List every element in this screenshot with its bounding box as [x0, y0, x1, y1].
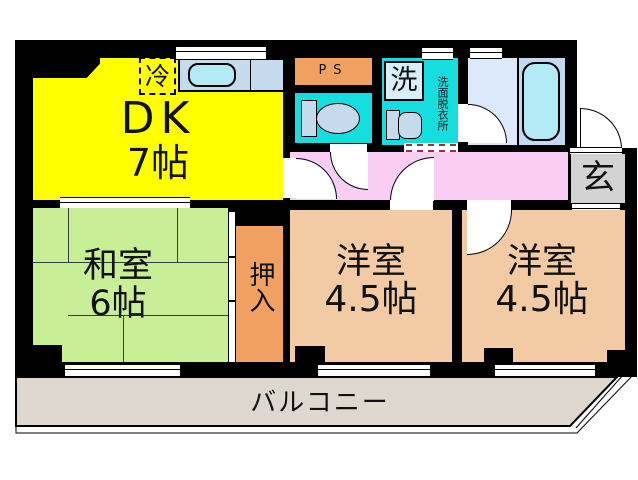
western-right-size: 4.5帖 — [495, 281, 588, 320]
toilet-bowl-icon — [316, 103, 360, 134]
western-right-corner-pillar — [607, 350, 625, 362]
western-right-balcony-window — [495, 364, 595, 377]
curtain-dash-1 — [406, 144, 456, 146]
washitsu-balcony-window — [65, 364, 180, 377]
bathroom-window — [470, 47, 502, 59]
kitchen-sink-icon — [188, 63, 236, 87]
oshiire-label: 押入 — [246, 232, 274, 342]
washitsu-name: 和室 — [83, 248, 153, 286]
dk-label: DK 7帖 — [68, 92, 248, 187]
western-left-pillar — [295, 346, 325, 362]
fridge-spot: 冷 — [139, 57, 176, 95]
washitsu-size: 6帖 — [89, 286, 146, 324]
pipe-space: PS — [295, 58, 372, 85]
dk-name: DK — [121, 95, 196, 143]
western-left-label: 洋室 4.5帖 — [295, 232, 447, 332]
washroom-window — [422, 47, 453, 60]
washer-label: 洗 — [391, 66, 418, 95]
floor-plan: 冷 DK 7帖 PS 洗 洗面脱衣所 玄 靴 — [0, 0, 638, 480]
fridge-label: 冷 — [145, 63, 170, 90]
genkan-label: 玄 — [581, 160, 615, 197]
washroom-label: 洗面脱衣所 — [430, 62, 454, 144]
western-left-door-gap — [390, 200, 433, 210]
ps-label: PS — [318, 64, 348, 78]
bathroom-door-gap — [458, 104, 468, 142]
kitchen-counter-divider — [250, 59, 251, 91]
oshiire-fusuma — [228, 212, 236, 362]
toilet-tank-icon — [301, 100, 317, 137]
genkan: 玄 — [570, 154, 625, 203]
toilet-door-gap — [330, 144, 367, 152]
western-left-balcony-window — [318, 364, 430, 377]
western-right-name: 洋室 — [507, 244, 577, 282]
western-right-pillar — [484, 348, 513, 362]
dk-size: 7帖 — [127, 143, 189, 184]
western-left-name: 洋室 — [336, 244, 406, 282]
washbasin-bowl-icon — [398, 112, 422, 139]
western-left-size: 4.5帖 — [324, 281, 417, 320]
washitsu-label: 和室 6帖 — [43, 238, 193, 333]
dk-door-gap — [283, 158, 296, 198]
washitsu-corner-pillar — [33, 345, 62, 362]
washing-machine: 洗 — [384, 61, 424, 101]
western-right-door-gap — [467, 200, 511, 210]
western-right-label: 洋室 4.5帖 — [466, 232, 618, 332]
bathtub-icon — [522, 62, 560, 141]
kitchen-window — [176, 46, 266, 60]
balcony-label: バルコニー — [200, 390, 440, 416]
